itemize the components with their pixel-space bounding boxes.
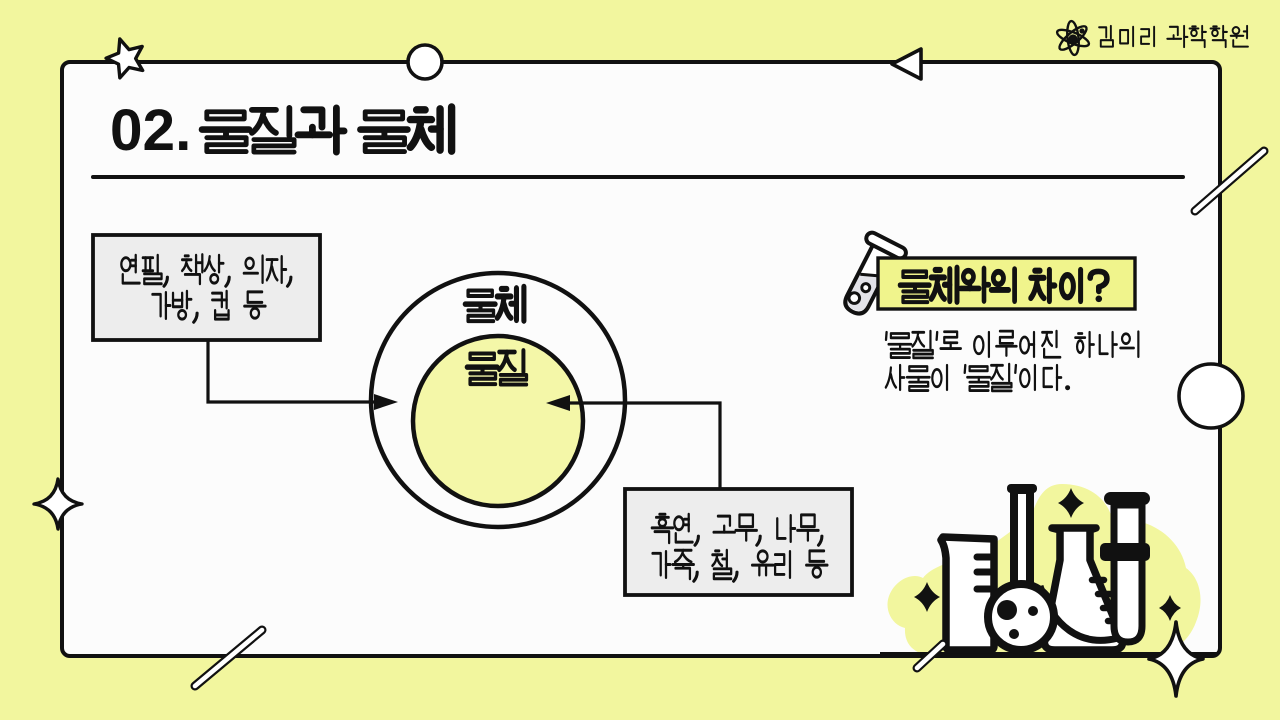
svg-text:02.: 02. bbox=[110, 98, 191, 163]
